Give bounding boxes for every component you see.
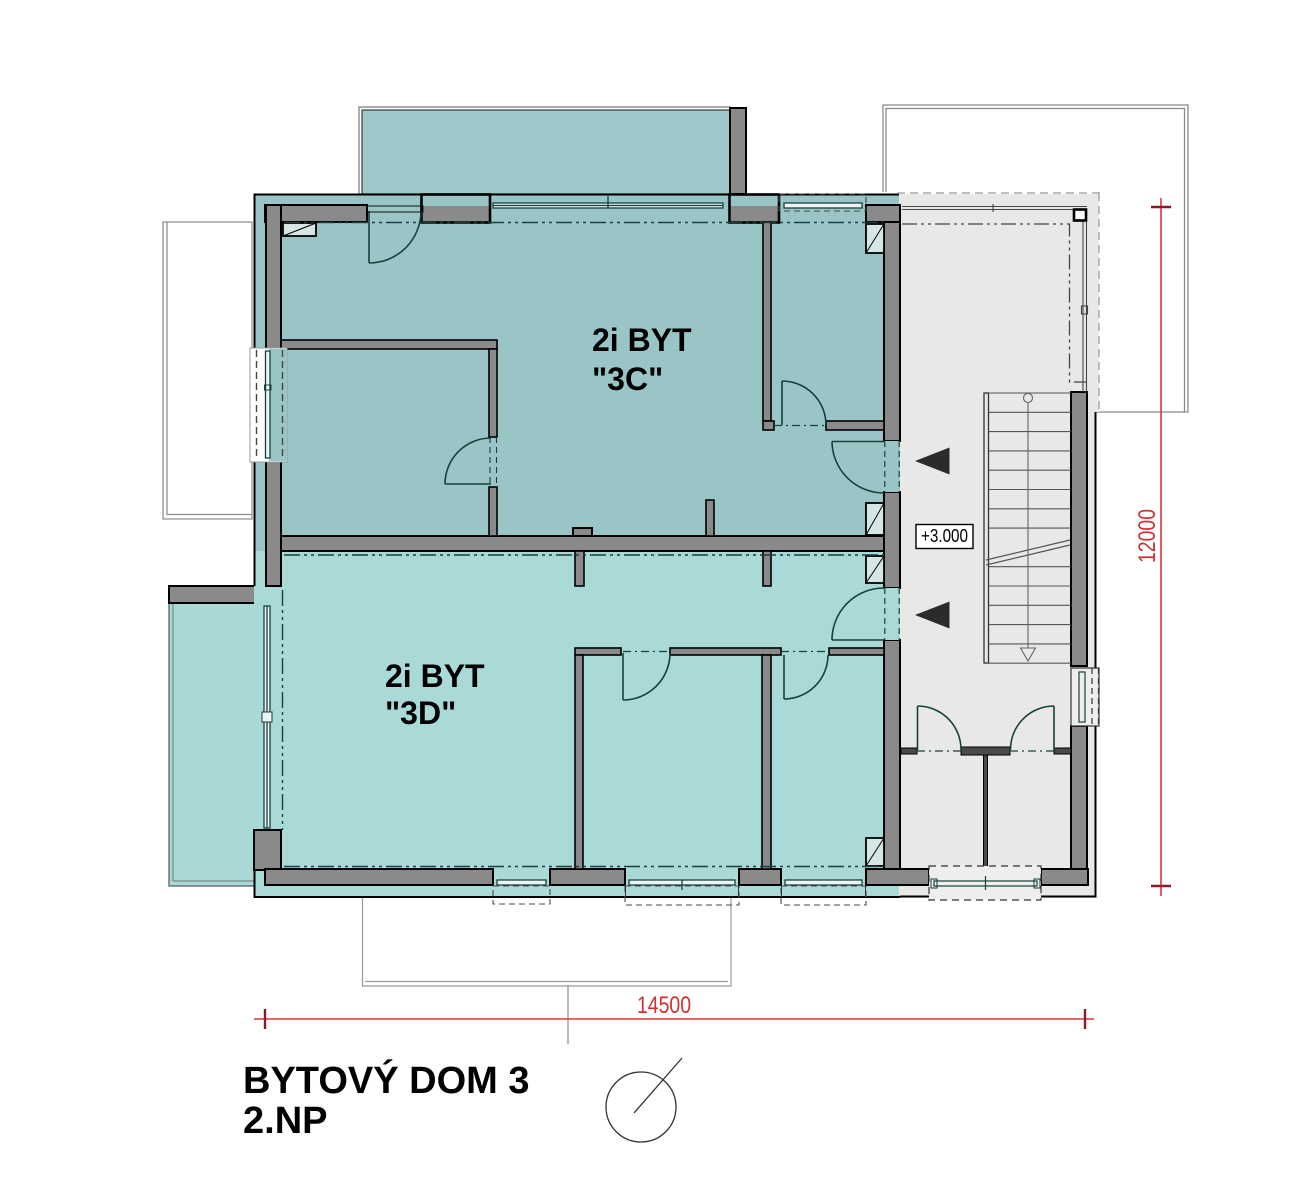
svg-text:2i BYT: 2i BYT (385, 658, 485, 694)
svg-text:2i BYT: 2i BYT (592, 322, 692, 358)
svg-text:+3.000: +3.000 (921, 526, 968, 546)
svg-text:"3D": "3D" (385, 695, 456, 731)
svg-text:12000: 12000 (1134, 509, 1161, 563)
svg-text:BYTOVÝ DOM 3: BYTOVÝ DOM 3 (243, 1058, 529, 1102)
svg-text:14500: 14500 (637, 992, 691, 1019)
svg-text:"3C": "3C" (592, 361, 663, 397)
svg-text:2.NP: 2.NP (243, 1100, 327, 1142)
